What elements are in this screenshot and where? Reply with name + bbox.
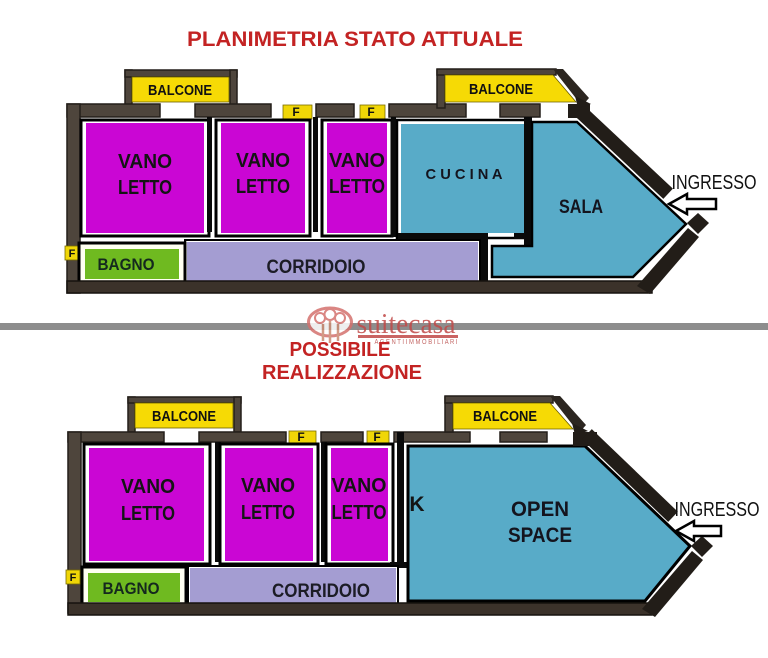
svg-text:VANO: VANO <box>332 475 387 497</box>
svg-text:K: K <box>409 493 424 516</box>
svg-text:F: F <box>367 105 374 119</box>
svg-text:BAGNO: BAGNO <box>98 255 155 274</box>
svg-text:LETTO: LETTO <box>118 177 172 199</box>
svg-text:VANO: VANO <box>329 150 385 172</box>
svg-text:F: F <box>70 572 77 584</box>
svg-text:F: F <box>373 430 380 444</box>
svg-text:BAGNO: BAGNO <box>103 579 160 598</box>
svg-text:BALCONE: BALCONE <box>473 409 537 425</box>
svg-text:C U C I N A: C U C I N A <box>426 166 503 183</box>
svg-text:LETTO: LETTO <box>332 502 387 524</box>
svg-text:REALIZZAZIONE: REALIZZAZIONE <box>262 361 422 384</box>
svg-text:VANO: VANO <box>118 151 172 173</box>
svg-text:BALCONE: BALCONE <box>469 82 533 98</box>
svg-text:CORRIDOIO: CORRIDOIO <box>267 257 366 278</box>
svg-text:F: F <box>297 430 304 444</box>
svg-text:LETTO: LETTO <box>236 176 290 198</box>
svg-text:PLANIMETRIA STATO ATTUALE: PLANIMETRIA STATO ATTUALE <box>187 27 523 51</box>
svg-text:VANO: VANO <box>241 475 295 497</box>
svg-text:CORRIDOIO: CORRIDOIO <box>272 581 370 602</box>
svg-text:LETTO: LETTO <box>121 503 175 525</box>
svg-text:VANO: VANO <box>236 150 290 172</box>
svg-text:SPACE: SPACE <box>508 524 572 547</box>
svg-text:SALA: SALA <box>559 197 603 218</box>
svg-text:F: F <box>292 105 299 119</box>
svg-text:INGRESSO: INGRESSO <box>672 172 757 194</box>
svg-text:BALCONE: BALCONE <box>152 409 216 425</box>
svg-text:LETTO: LETTO <box>329 176 385 198</box>
svg-text:VANO: VANO <box>121 476 175 498</box>
svg-text:OPEN: OPEN <box>511 498 569 521</box>
svg-text:LETTO: LETTO <box>241 502 295 524</box>
svg-text:F: F <box>69 248 76 260</box>
svg-text:INGRESSO: INGRESSO <box>675 499 760 521</box>
svg-text:POSSIBILE: POSSIBILE <box>290 338 391 361</box>
svg-text:BALCONE: BALCONE <box>148 83 212 99</box>
